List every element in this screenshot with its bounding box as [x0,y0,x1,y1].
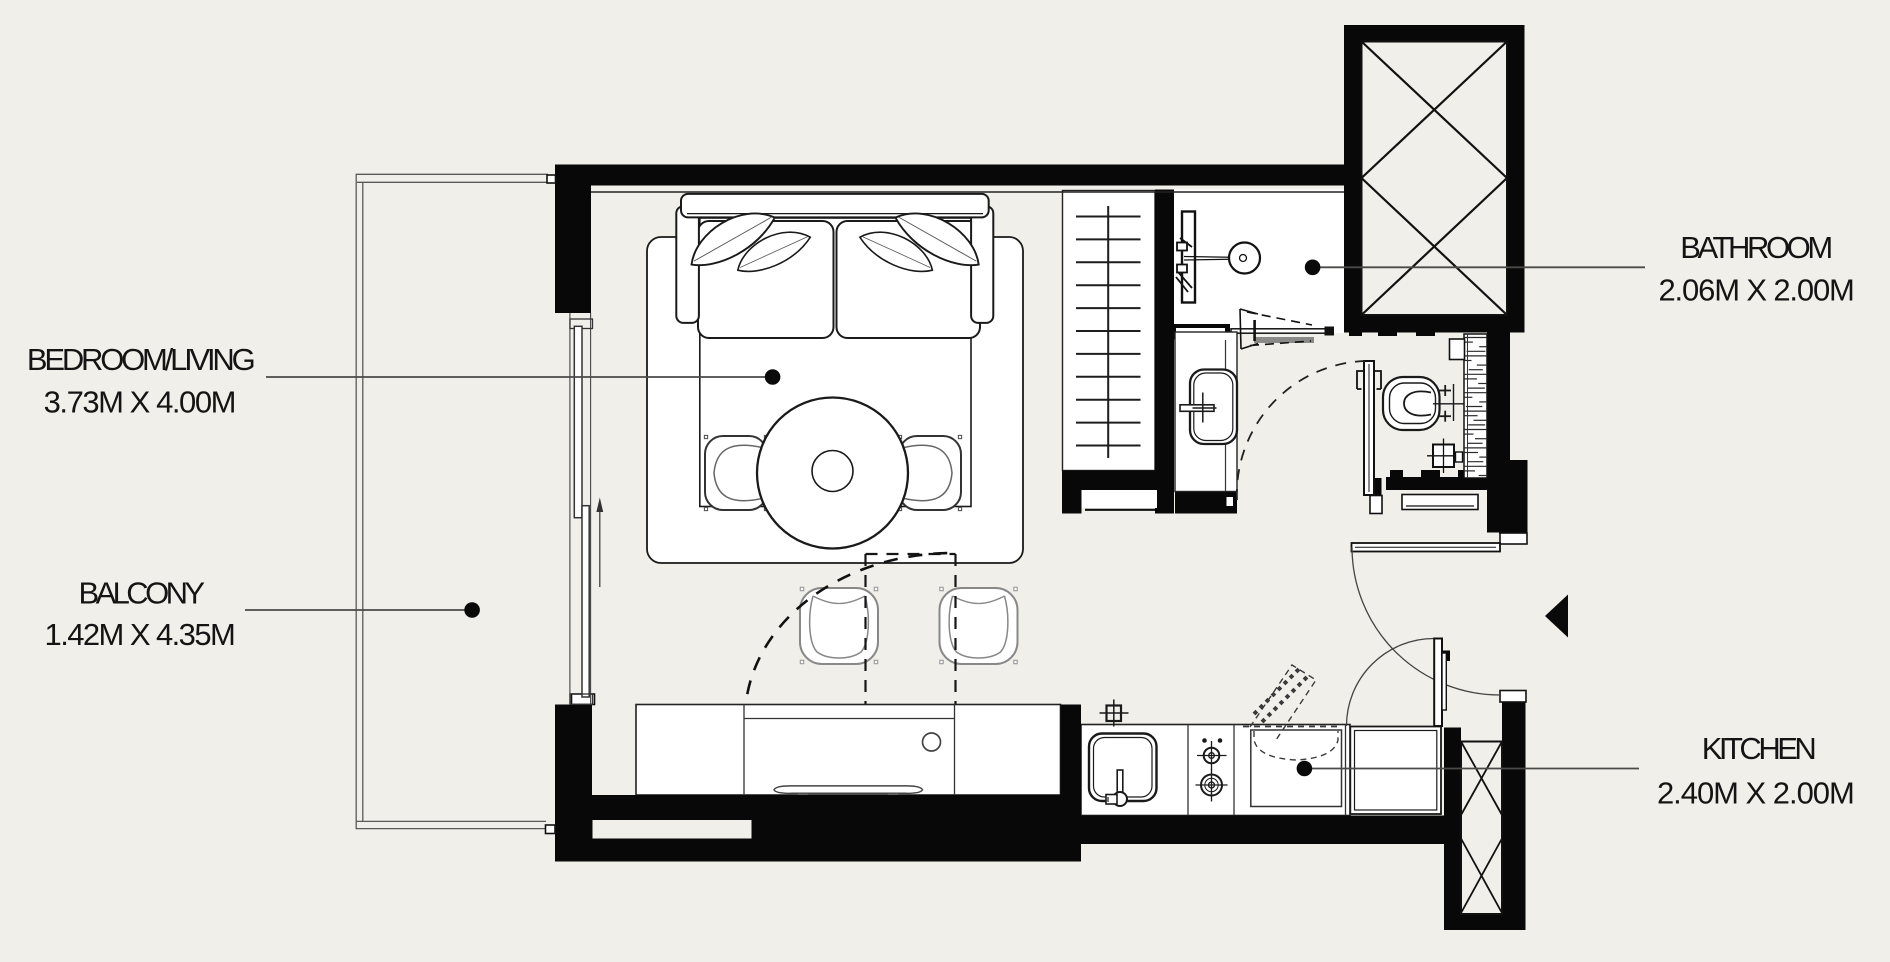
svg-text:BATHROOM: BATHROOM [1680,230,1831,265]
svg-text:3.73M X 4.00M: 3.73M X 4.00M [44,385,235,420]
svg-text:BEDROOM/LIVING: BEDROOM/LIVING [27,342,254,377]
svg-text:KITCHEN: KITCHEN [1702,731,1815,766]
svg-text:2.40M X 2.00M: 2.40M X 2.00M [1657,776,1854,811]
svg-text:2.06M X 2.00M: 2.06M X 2.00M [1658,273,1853,308]
svg-text:1.42M X 4.35M: 1.42M X 4.35M [45,617,235,652]
svg-text:BALCONY: BALCONY [79,576,205,611]
